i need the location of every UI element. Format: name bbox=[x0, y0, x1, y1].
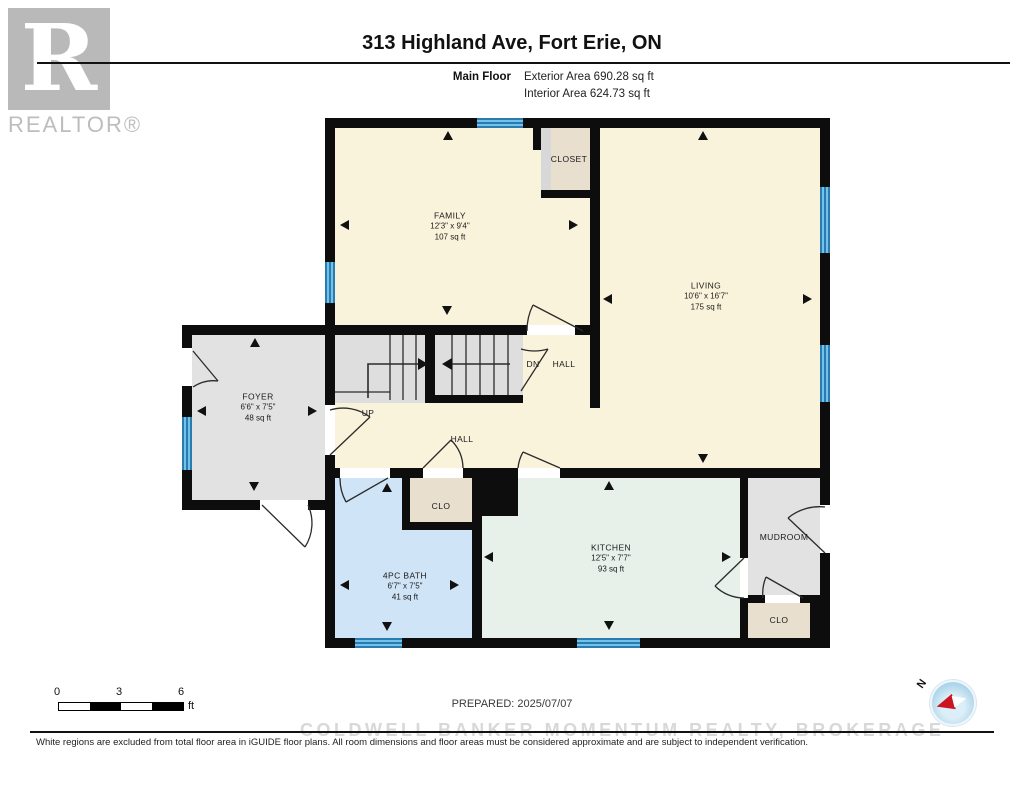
room-clo-hall bbox=[410, 478, 472, 522]
wall bbox=[182, 386, 192, 417]
wall bbox=[325, 335, 335, 405]
page-title: 313 Highland Ave, Fort Erie, ON bbox=[0, 32, 1024, 55]
window bbox=[355, 638, 402, 648]
window bbox=[477, 118, 523, 128]
window bbox=[820, 187, 830, 253]
measure-arrow-up bbox=[604, 481, 614, 490]
stairs-up bbox=[335, 335, 425, 403]
room-mudroom-label: MUDROOM bbox=[760, 532, 809, 542]
wall bbox=[820, 118, 830, 187]
wall bbox=[325, 455, 335, 500]
wall bbox=[402, 522, 472, 530]
floor-label: Main Floor bbox=[0, 71, 511, 83]
wall bbox=[182, 500, 260, 510]
up-label: UP bbox=[362, 408, 375, 418]
closet-door-strip bbox=[541, 128, 551, 190]
measure-arrow-left bbox=[603, 294, 612, 304]
stairs-down bbox=[435, 335, 523, 395]
room-kitchen-label: KITCHEN 12'5" x 7'7" 93 sq ft bbox=[591, 542, 631, 575]
measure-arrow-left bbox=[340, 580, 349, 590]
window bbox=[325, 262, 335, 303]
wall bbox=[390, 468, 423, 478]
wall bbox=[533, 128, 541, 150]
wall bbox=[640, 638, 830, 648]
room-dn-hall bbox=[523, 335, 590, 403]
disclaimer-text: White regions are excluded from total fl… bbox=[36, 737, 1016, 748]
measure-arrow-right bbox=[569, 220, 578, 230]
measure-arrow-up bbox=[443, 131, 453, 140]
dn-hall-label: HALL bbox=[553, 359, 576, 369]
wall bbox=[325, 500, 335, 648]
wall bbox=[308, 500, 335, 510]
wall bbox=[748, 595, 765, 603]
wall bbox=[425, 325, 435, 403]
measure-arrow-left bbox=[484, 552, 493, 562]
scale-tick-6: 6 bbox=[178, 686, 184, 698]
header-divider bbox=[37, 62, 1010, 64]
wall bbox=[472, 478, 482, 638]
measure-arrow-down bbox=[442, 306, 452, 315]
measure-arrow-right bbox=[308, 406, 317, 416]
exterior-area: Exterior Area 690.28 sq ft bbox=[524, 71, 654, 83]
measure-arrow-left bbox=[197, 406, 206, 416]
window bbox=[577, 638, 640, 648]
hall-label: HALL bbox=[451, 434, 474, 444]
clo-mud-label: CLO bbox=[770, 615, 789, 625]
window bbox=[182, 417, 192, 470]
measure-arrow-down bbox=[698, 454, 708, 463]
room-family-label: FAMILY 12'3" x 9'4" 107 sq ft bbox=[430, 210, 469, 243]
wall bbox=[182, 325, 192, 348]
wall bbox=[820, 402, 830, 505]
window bbox=[820, 345, 830, 402]
measure-arrow-down bbox=[604, 621, 614, 630]
clo-hall-label: CLO bbox=[432, 501, 451, 511]
footer-divider bbox=[30, 731, 994, 733]
wall bbox=[820, 253, 830, 345]
prepared-date: PREPARED: 2025/07/07 bbox=[0, 698, 1024, 710]
wall bbox=[463, 468, 472, 478]
wall bbox=[541, 190, 600, 198]
measure-arrow-right bbox=[803, 294, 812, 304]
wall bbox=[402, 478, 410, 522]
wall bbox=[182, 325, 335, 335]
interior-area: Interior Area 624.73 sq ft bbox=[524, 88, 650, 100]
realtor-wordmark: REALTOR® bbox=[8, 112, 112, 138]
measure-arrow-up bbox=[698, 131, 708, 140]
room-living-label: LIVING 10'6" x 16'7" 175 sq ft bbox=[684, 280, 728, 313]
wall bbox=[402, 638, 577, 648]
scale-tick-3: 3 bbox=[116, 686, 122, 698]
room-foyer-label: FOYER 6'6" x 7'5" 48 sq ft bbox=[241, 391, 276, 424]
wall bbox=[740, 598, 748, 648]
room-bath-label: 4PC BATH 6'7" x 7'5" 41 sq ft bbox=[383, 570, 427, 603]
wall bbox=[325, 118, 335, 262]
compass-icon: N bbox=[918, 672, 978, 726]
floorplan-page: R REALTOR® 313 Highland Ave, Fort Erie, … bbox=[0, 0, 1024, 791]
wall bbox=[523, 118, 830, 128]
measure-arrow-up bbox=[250, 338, 260, 347]
dn-label: DN bbox=[526, 359, 539, 369]
room-closet-label: CLOSET bbox=[551, 154, 587, 164]
measure-arrow-right bbox=[450, 580, 459, 590]
measure-arrow-up bbox=[382, 483, 392, 492]
north-label: N bbox=[915, 677, 929, 690]
measure-arrow-down bbox=[249, 482, 259, 491]
wall bbox=[820, 553, 830, 648]
wall bbox=[435, 395, 523, 403]
realtor-logo-letter: R bbox=[8, 8, 110, 110]
wall bbox=[335, 468, 340, 478]
wall bbox=[590, 118, 600, 408]
scale-tick-0: 0 bbox=[54, 686, 60, 698]
measure-arrow-right bbox=[722, 552, 731, 562]
wall bbox=[740, 468, 748, 558]
wall bbox=[594, 468, 820, 478]
measure-arrow-down bbox=[382, 622, 392, 631]
wall bbox=[325, 118, 477, 128]
wall bbox=[810, 595, 820, 648]
measure-arrow-left bbox=[340, 220, 349, 230]
